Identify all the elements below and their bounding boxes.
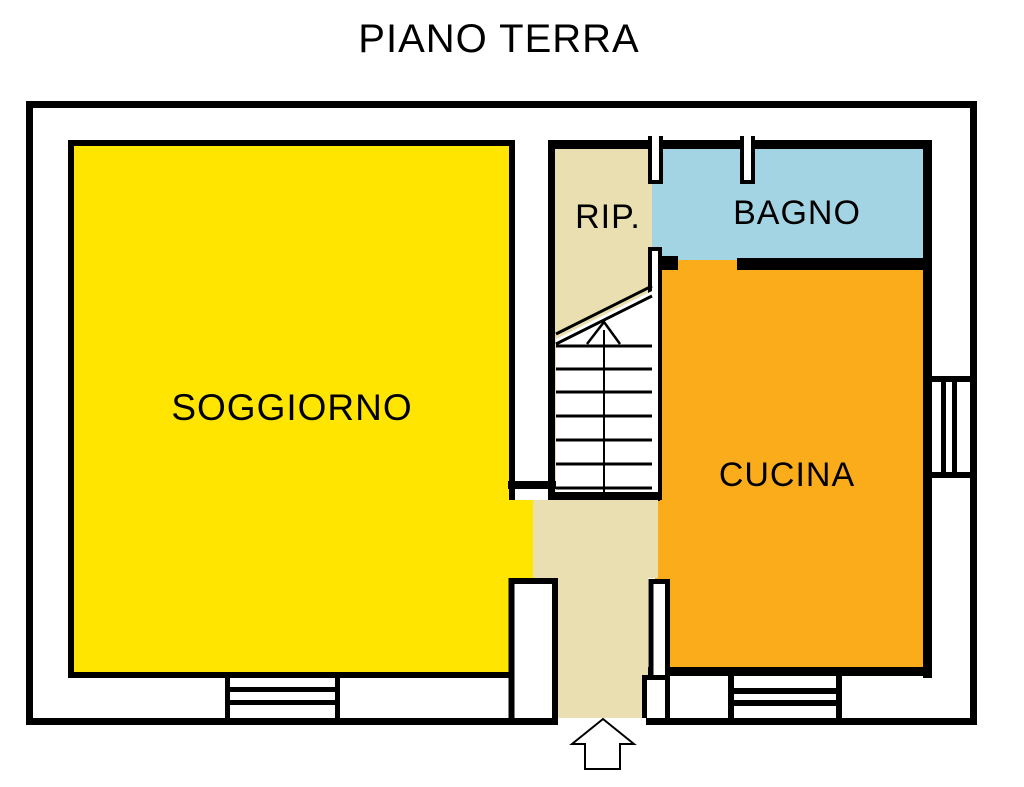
wall-cucina-bottom (648, 667, 932, 676)
doorway-soggiorno (505, 500, 533, 578)
label-soggiorno: SOGGIORNO (171, 387, 412, 428)
wall-stairwell-left (548, 140, 555, 500)
entrance-corridor (558, 578, 648, 718)
door-leaf-rip-bagno (648, 136, 663, 184)
wall-cap-soggiorno-stairwell (508, 481, 556, 489)
hallway-landing (533, 500, 658, 578)
wall-corridor-left (512, 581, 556, 718)
door-jamb-cucina (661, 256, 678, 270)
label-bagno: BAGNO (733, 194, 861, 232)
wall-corridor-right-upper (651, 582, 668, 677)
stairs-bottom-edge (548, 492, 660, 501)
floor-plan-page: PIANO TERRA (0, 0, 1024, 787)
wall-bagno-bottom (737, 258, 932, 270)
door-leaf-bagno (740, 136, 755, 184)
window-cucina-right (927, 376, 977, 478)
label-ripostiglio: RIP. (575, 198, 641, 236)
plan-title: PIANO TERRA (358, 17, 639, 61)
wall-corridor-right-lower (645, 678, 668, 719)
floor-plan-drawing: PIANO TERRA (0, 0, 1024, 787)
label-cucina: CUCINA (719, 456, 855, 494)
